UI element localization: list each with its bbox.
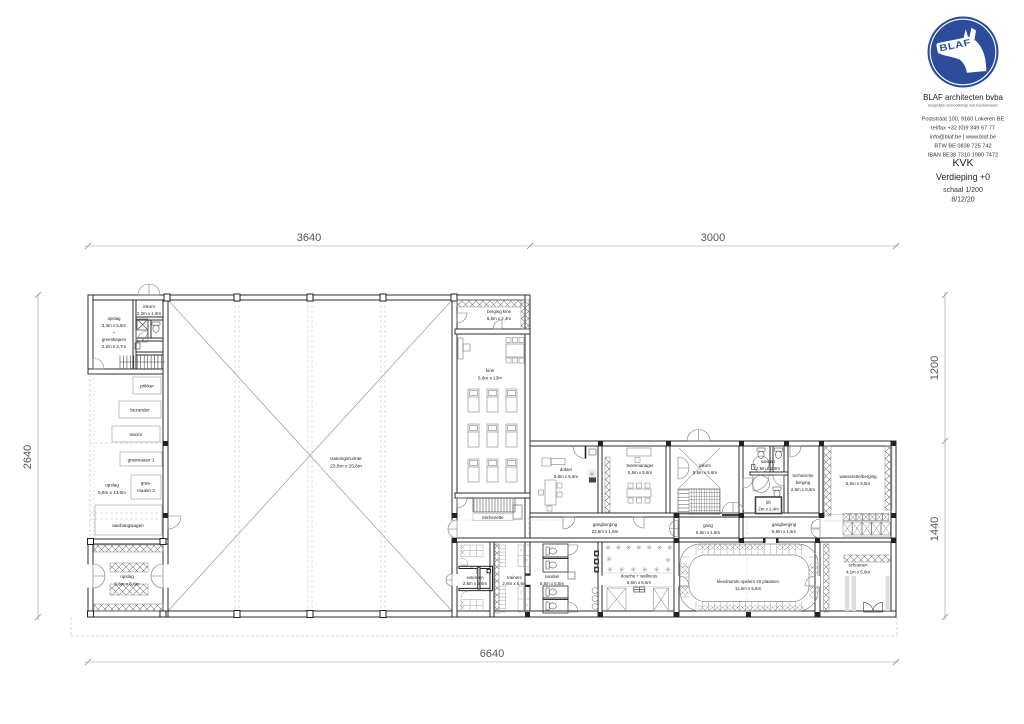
svg-text:tel/fax +32 (0)9 349 67 77: tel/fax +32 (0)9 349 67 77 xyxy=(931,126,995,132)
svg-text:aanhangwagen: aanhangwagen xyxy=(112,523,144,528)
svg-text:BTW BE 0838 725 742: BTW BE 0838 725 742 xyxy=(934,144,991,150)
svg-text:BLAF architecten bvba: BLAF architecten bvba xyxy=(923,93,1003,102)
svg-text:info@blaf.be | www.blaf.be: info@blaf.be | www.blaf.be xyxy=(930,135,996,141)
svg-text:prikker: prikker xyxy=(140,384,154,389)
svg-text:Verdieping +0: Verdieping +0 xyxy=(936,172,990,182)
svg-text:KVK: KVK xyxy=(952,157,973,169)
svg-text:2640: 2640 xyxy=(22,445,34,469)
svg-text:1200: 1200 xyxy=(929,356,941,380)
svg-text:schaal 1/200: schaal 1/200 xyxy=(943,187,983,194)
svg-text:tractor: tractor xyxy=(129,432,142,437)
svg-text:1440: 1440 xyxy=(929,517,941,541)
svg-text:3640: 3640 xyxy=(297,232,321,244)
svg-text:bezander: bezander xyxy=(130,408,150,413)
svg-text:Poststraat 100, 9160 Lokeren B: Poststraat 100, 9160 Lokeren BE xyxy=(922,117,1005,123)
svg-text:grasmaaier 1: grasmaaier 1 xyxy=(128,458,155,463)
svg-text:kitchenette: kitchenette xyxy=(482,515,504,520)
svg-text:burgerlijke vennootschap met h: burgerlijke vennootschap met handelsnaam xyxy=(928,104,998,108)
svg-text:8/12/20: 8/12/20 xyxy=(951,197,974,204)
svg-text:3000: 3000 xyxy=(701,232,725,244)
svg-text:6640: 6640 xyxy=(480,648,504,660)
